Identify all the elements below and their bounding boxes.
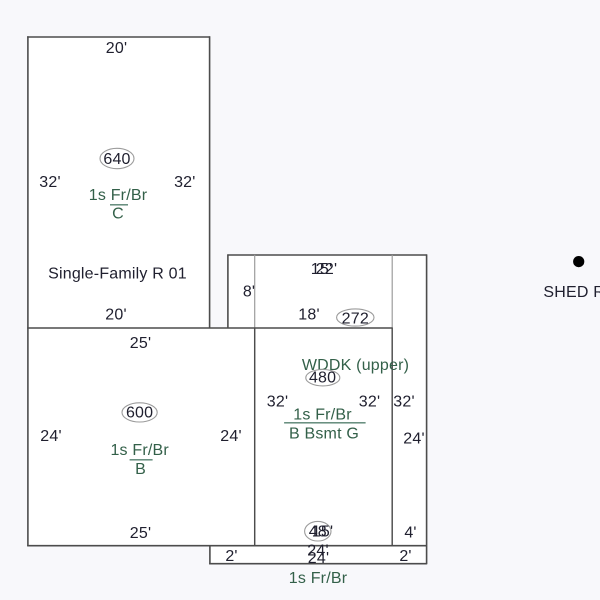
svg-text:8': 8' [243, 283, 255, 300]
svg-text:2': 2' [225, 548, 237, 565]
svg-text:24': 24' [220, 428, 241, 445]
svg-text:25': 25' [130, 525, 151, 542]
svg-text:20': 20' [105, 306, 126, 323]
svg-text:32': 32' [359, 393, 380, 410]
svg-text:600: 600 [126, 404, 153, 421]
svg-text:SHED R 01: SHED R 01 [543, 284, 600, 301]
svg-text:15': 15' [312, 524, 333, 541]
svg-text:2': 2' [399, 548, 411, 565]
svg-text:32': 32' [39, 174, 60, 191]
svg-text:18': 18' [298, 306, 319, 323]
svg-text:32': 32' [393, 393, 414, 410]
svg-text:25': 25' [130, 335, 151, 352]
svg-text:1s Fr/Br: 1s Fr/Br [89, 187, 148, 204]
svg-text:B Bsmt G: B Bsmt G [289, 426, 359, 443]
svg-text:24': 24' [403, 431, 424, 448]
svg-text:640: 640 [103, 151, 130, 168]
svg-text:480: 480 [309, 370, 336, 387]
svg-text:B: B [135, 461, 146, 478]
svg-text:24': 24' [308, 550, 329, 567]
svg-text:1s Fr/Br: 1s Fr/Br [110, 442, 169, 459]
svg-text:4': 4' [404, 525, 416, 542]
svg-text:20': 20' [106, 40, 127, 57]
svg-text:C: C [112, 206, 124, 223]
svg-text:1s Fr/Br: 1s Fr/Br [289, 570, 348, 587]
svg-text:24': 24' [40, 428, 61, 445]
svg-text:22': 22' [316, 261, 337, 278]
svg-text:32': 32' [267, 393, 288, 410]
svg-text:272: 272 [342, 311, 369, 328]
svg-text:32': 32' [174, 174, 195, 191]
svg-text:Single-Family R 01: Single-Family R 01 [48, 266, 187, 283]
svg-text:1s Fr/Br: 1s Fr/Br [293, 407, 352, 424]
